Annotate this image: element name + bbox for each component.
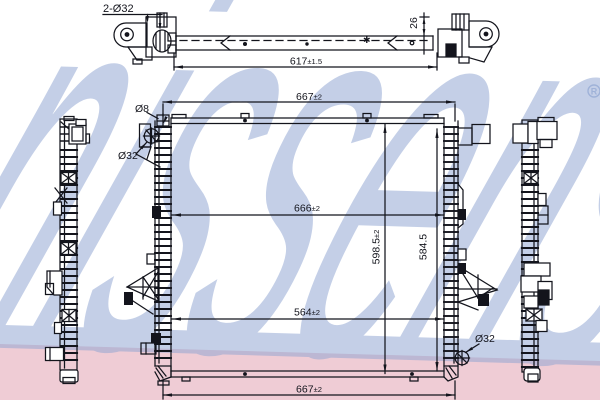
svg-text:584.5: 584.5 [418, 234, 430, 260]
svg-text:666±2: 666±2 [294, 203, 320, 215]
svg-text:564±2: 564±2 [294, 307, 320, 319]
svg-text:667±2: 667±2 [296, 91, 322, 103]
svg-text:598.5±2: 598.5±2 [371, 230, 383, 265]
svg-text:✱: ✱ [363, 35, 371, 45]
svg-text:2-Ø32: 2-Ø32 [103, 3, 134, 15]
svg-text:26: 26 [408, 17, 420, 29]
svg-text:617±1.5: 617±1.5 [290, 56, 322, 68]
svg-text:667±2: 667±2 [296, 384, 322, 396]
svg-text:R: R [591, 87, 598, 97]
svg-text:Ø32: Ø32 [475, 333, 495, 345]
svg-text:Ø32: Ø32 [118, 150, 138, 162]
